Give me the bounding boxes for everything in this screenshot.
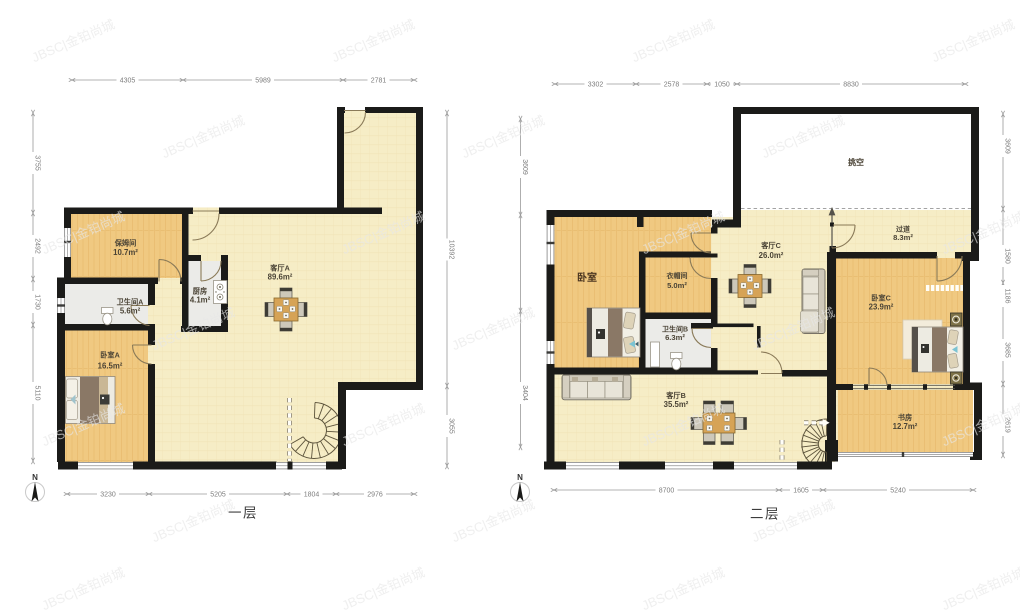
- svg-text:12.7m²: 12.7m²: [893, 422, 918, 431]
- svg-text:3685: 3685: [1003, 342, 1010, 358]
- svg-text:5989: 5989: [255, 77, 271, 84]
- svg-text:1804: 1804: [304, 491, 320, 498]
- svg-text:1186: 1186: [1003, 288, 1010, 303]
- svg-text:卧室A: 卧室A: [100, 351, 120, 360]
- svg-text:1730: 1730: [33, 294, 40, 310]
- svg-text:5240: 5240: [890, 487, 906, 494]
- svg-text:5205: 5205: [210, 491, 226, 498]
- svg-text:5.6m²: 5.6m²: [120, 307, 141, 316]
- svg-text:8830: 8830: [843, 81, 859, 88]
- svg-text:3609: 3609: [521, 159, 528, 175]
- svg-text:3609: 3609: [1003, 138, 1010, 154]
- svg-text:保姆间: 保姆间: [114, 239, 137, 248]
- svg-text:8700: 8700: [659, 487, 675, 494]
- svg-text:10.7m²: 10.7m²: [113, 248, 138, 257]
- svg-text:4305: 4305: [120, 77, 136, 84]
- svg-text:6.3m²: 6.3m²: [665, 333, 685, 342]
- svg-text:卫生间A: 卫生间A: [117, 298, 144, 307]
- svg-text:N: N: [517, 473, 523, 482]
- svg-text:2492: 2492: [33, 238, 40, 254]
- svg-text:10392: 10392: [447, 240, 454, 260]
- svg-text:卧室: 卧室: [577, 271, 597, 284]
- svg-text:卧室C: 卧室C: [871, 294, 891, 303]
- svg-text:3230: 3230: [100, 491, 116, 498]
- svg-text:3755: 3755: [33, 155, 40, 171]
- svg-text:5110: 5110: [33, 385, 40, 400]
- svg-text:2976: 2976: [367, 491, 383, 498]
- svg-text:3404: 3404: [521, 385, 528, 401]
- svg-text:16.5m²: 16.5m²: [98, 362, 123, 371]
- svg-text:8.3m²: 8.3m²: [893, 233, 913, 242]
- svg-text:35.5m²: 35.5m²: [664, 400, 689, 409]
- svg-text:N: N: [32, 473, 38, 482]
- svg-text:1605: 1605: [793, 487, 809, 494]
- svg-text:3055: 3055: [447, 418, 454, 434]
- svg-text:3302: 3302: [588, 81, 604, 88]
- svg-text:书房: 书房: [898, 413, 912, 422]
- svg-text:89.6m²: 89.6m²: [268, 273, 293, 282]
- svg-text:衣帽间: 衣帽间: [667, 271, 688, 280]
- svg-text:26.0m²: 26.0m²: [759, 251, 784, 260]
- svg-text:客厅C: 客厅C: [760, 241, 781, 250]
- svg-text:5.0m²: 5.0m²: [667, 281, 687, 290]
- svg-text:挑空: 挑空: [848, 157, 864, 167]
- svg-text:2781: 2781: [371, 77, 387, 84]
- svg-text:客厅A: 客厅A: [269, 264, 290, 273]
- svg-text:1050: 1050: [714, 81, 730, 88]
- svg-text:23.9m²: 23.9m²: [869, 303, 894, 312]
- svg-text:1580: 1580: [1003, 248, 1010, 264]
- svg-text:4.1m²: 4.1m²: [190, 296, 211, 305]
- svg-text:2578: 2578: [664, 81, 680, 88]
- svg-text:厨房: 厨房: [193, 287, 207, 296]
- svg-text:客厅B: 客厅B: [665, 391, 686, 400]
